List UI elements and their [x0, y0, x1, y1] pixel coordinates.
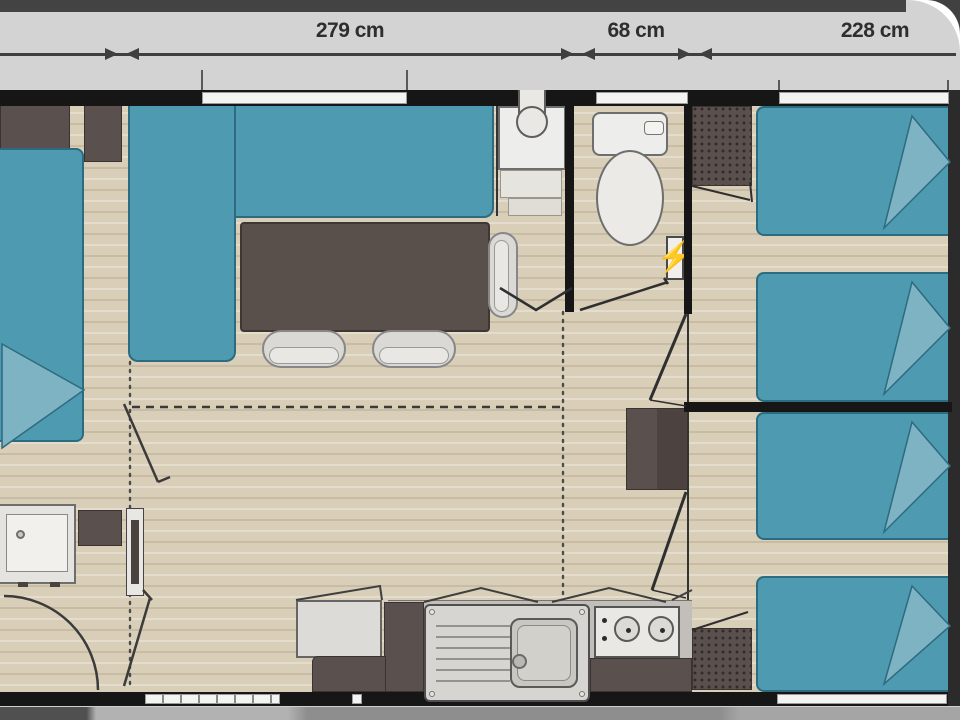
bed-blanket	[2, 344, 84, 448]
corner-backdrop	[926, 0, 960, 34]
bed-blanket	[884, 586, 950, 684]
bed-blanket	[884, 282, 950, 394]
door-leaf	[124, 590, 152, 686]
bed-blanket	[884, 422, 950, 532]
bed-blanket	[884, 116, 950, 228]
door-swing-arc	[4, 596, 98, 690]
window-tick	[947, 80, 949, 90]
wardrobe-door-swing	[692, 182, 752, 202]
coolbox-lid-line	[296, 586, 382, 600]
shower-bifold-door	[500, 288, 572, 310]
window-tick	[778, 80, 780, 90]
wardrobe-door-swing	[692, 612, 748, 630]
floor-plan-image: ⚡	[0, 0, 960, 720]
door-swing	[650, 400, 686, 406]
water-heater-base	[516, 106, 548, 138]
door-leaf	[652, 492, 686, 590]
card-corner	[0, 0, 960, 60]
window-tick	[406, 70, 408, 90]
bottom-crop-strip	[0, 706, 960, 720]
door-swing	[652, 590, 686, 598]
door-leaf	[650, 314, 686, 400]
window-tick	[201, 70, 203, 90]
plan-line-overlay	[0, 0, 960, 720]
door-leaf	[124, 404, 170, 482]
door-leaf	[580, 278, 668, 310]
cupboard-swing-lines	[424, 588, 692, 602]
